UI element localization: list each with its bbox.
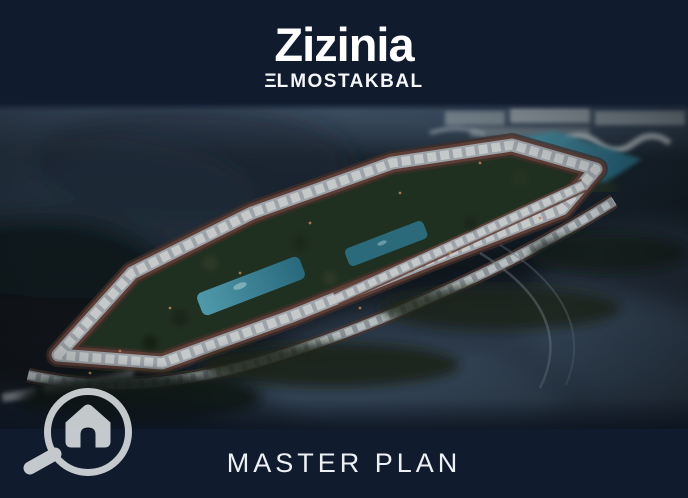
brand-subtitle-text: MOSTAKBAL [290, 71, 423, 93]
magnifier-house-glyph [16, 381, 140, 485]
top-blend [0, 103, 688, 111]
brand-logo: Zizinia [274, 21, 413, 68]
masterplan-title: MASTER PLAN [227, 448, 462, 479]
brand-subtitle: ΞL MOSTAKBAL [264, 71, 423, 93]
magnifier-house-icon [16, 381, 140, 485]
el-mark: ΞL [264, 71, 288, 93]
header: Zizinia ΞL MOSTAKBAL [0, 0, 688, 103]
